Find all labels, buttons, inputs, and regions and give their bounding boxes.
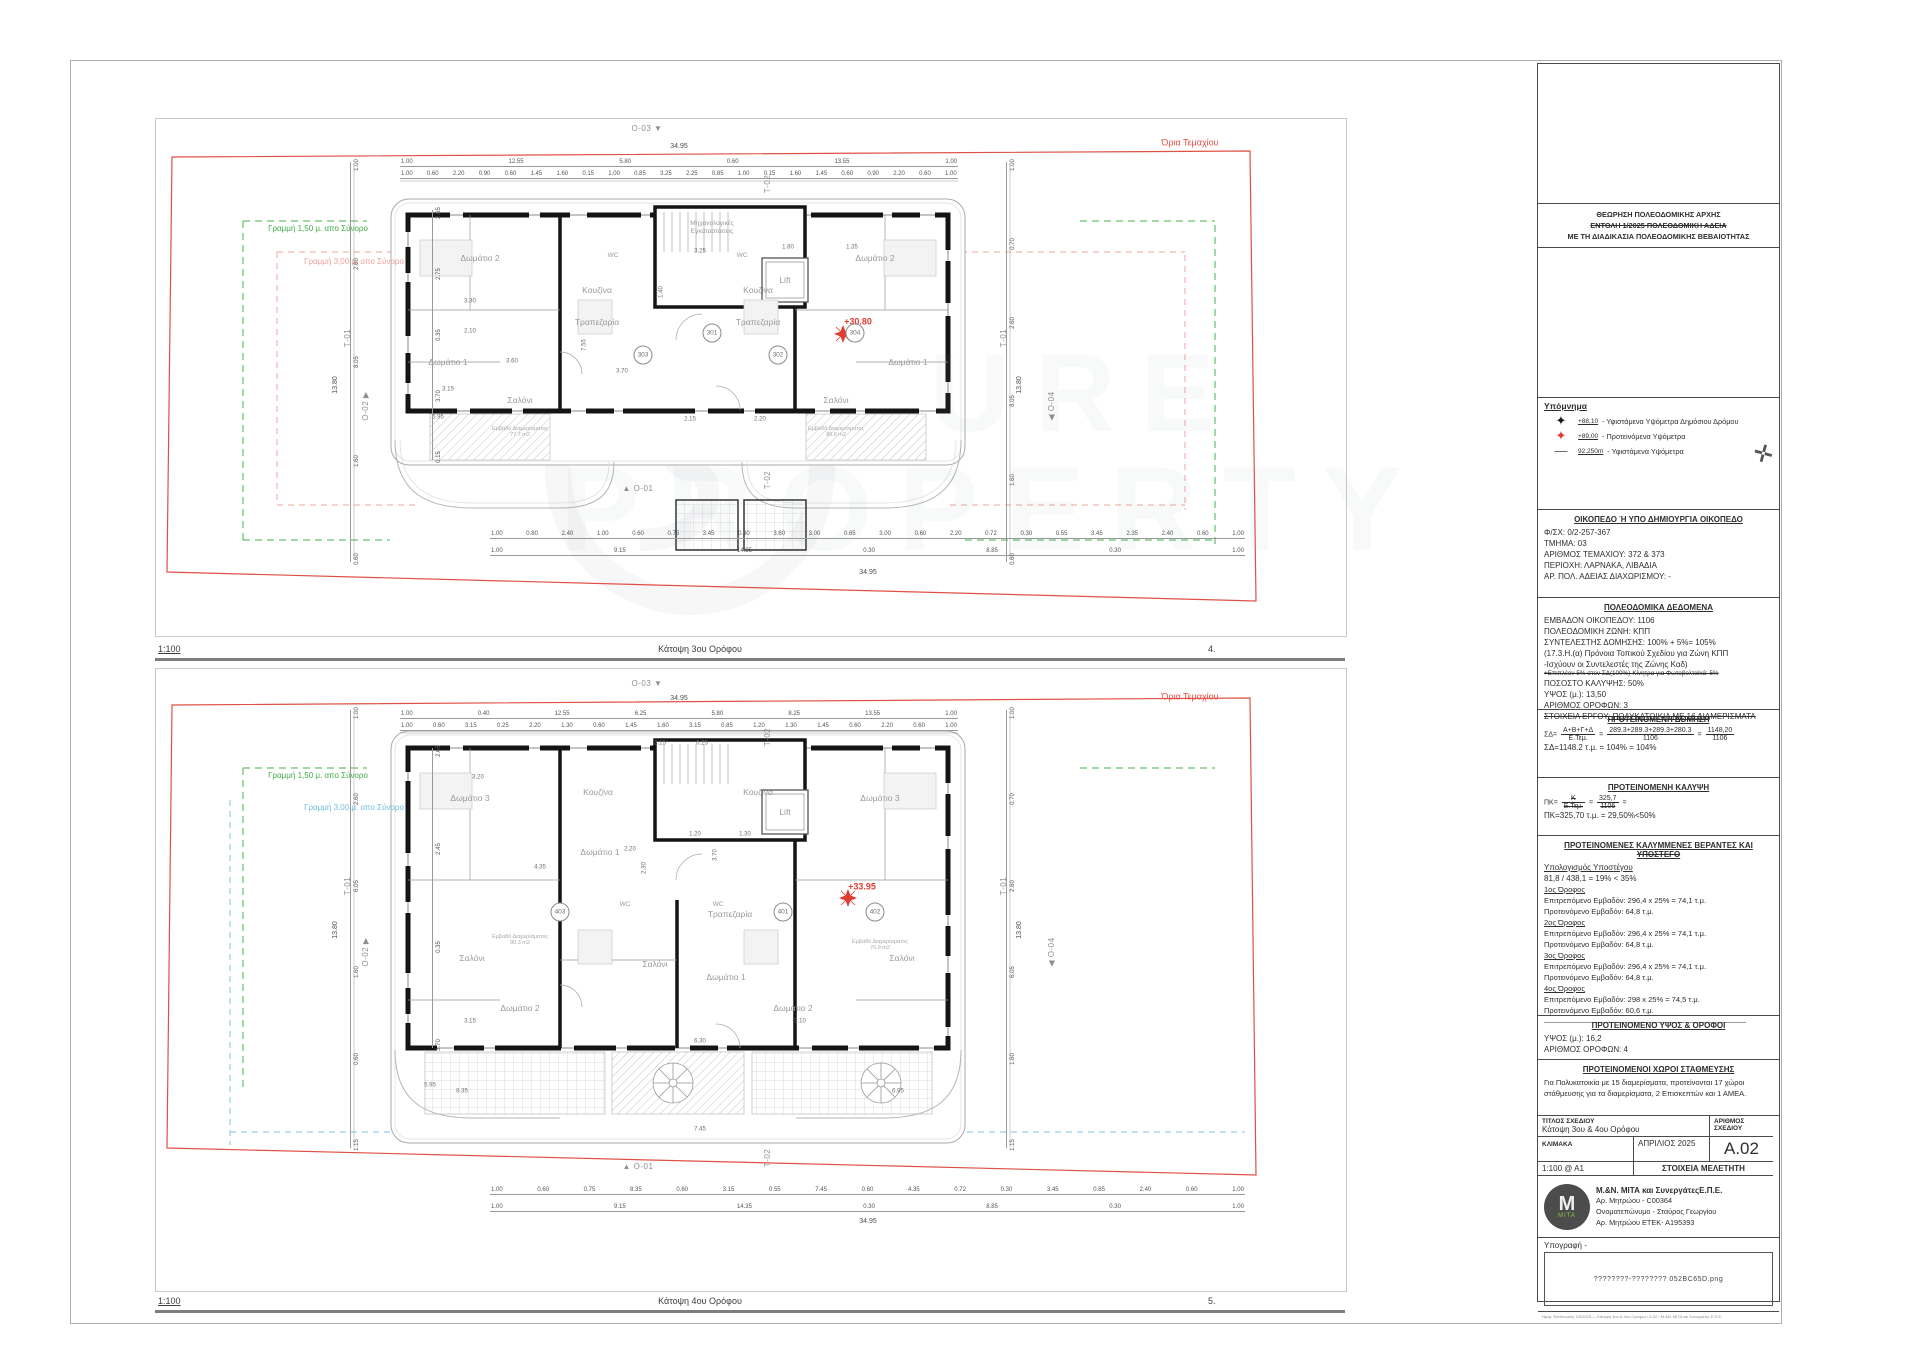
legend-items: ✦+88,10- Υφιστάμενα Υψόμετρα Δημόσιου Δρ… — [1544, 416, 1773, 456]
legend-description: - Προτεινόμενα Υψόμετρα — [1602, 432, 1685, 441]
verandas-calc-title: Υπολογισμός Υποστέγου — [1544, 862, 1773, 873]
drawing-number-label: ΑΡΙΘΜΟΣ ΣΧΕΔΙΟΥ — [1714, 1118, 1769, 1132]
zoning-header: ΠΟΛΕΟΔΟΜΙΚΑ ΔΕΔΟΜΕΝΑ — [1544, 603, 1773, 612]
verandas-calc: 81,8 / 438,1 = 19% < 35% — [1544, 873, 1773, 884]
plan2-caption-scale: 1:100 — [158, 1296, 181, 1306]
verandas-floors: 1ος ΌροφοςΕπιτρεπόμενο Εμβαδόν: 296,4 x … — [1544, 884, 1773, 1016]
legend-description: - Υφιστάμενα Υψόμετρα — [1607, 447, 1683, 456]
floor-allowed-area: Επιτρεπόμενο Εμβαδόν: 298 x 25% = 74,5 τ… — [1544, 994, 1773, 1005]
date-cell: ΑΠΡΙΛΙΟΣ 2025 — [1634, 1137, 1710, 1162]
stamp-area-2 — [1538, 248, 1779, 398]
scale-label-cell: ΚΛΙΜΑΚΑ — [1538, 1137, 1634, 1162]
drawing-title-cell: ΤΙΤΛΟΣ ΣΧΕΔΙΟΥ Κάτοψη 3ου & 4ου Ορόφου — [1538, 1116, 1710, 1137]
approval-line: ΘΕΩΡΗΣΗ ΠΟΛΕΟΔΟΜΙΚΗΣ ΑΡΧΗΣ — [1544, 209, 1773, 220]
legend-elevation-value: 92.250m — [1578, 448, 1603, 455]
sd-formula: ΣΔ= Α+Β+Γ+ΔΕ.Τεμ. = 289.3+289.3+289.3+28… — [1544, 727, 1773, 742]
approval-line: ΕΝΤΟΛΗ 1/2025 ΠΟΛΕΟΔΟΜΙΚΗ ΑΔΕΙΑ — [1544, 220, 1773, 231]
plan1-caption-number: 4. — [1208, 644, 1216, 654]
designer-lines: Αρ. Μητρώου - C00364Ονοματεπώνυμο - Σταύ… — [1596, 1195, 1722, 1228]
pk-formula: ΠΚ= ΚΕ.Τεμ. = 325,71106 = — [1544, 795, 1773, 810]
drawing-title-label: ΤΙΤΛΟΣ ΣΧΕΔΙΟΥ — [1542, 1118, 1705, 1125]
legend-title: Υπόμνημα — [1544, 401, 1773, 411]
verandas-header-2: ΥΠΟΣΤΕΓΟ — [1544, 850, 1773, 859]
floor-name: 4ος Όροφος — [1544, 983, 1773, 994]
approval-text-block: ΘΕΩΡΗΣΗ ΠΟΛΕΟΔΟΜΙΚΗΣ ΑΡΧΗΣΕΝΤΟΛΗ 1/2025 … — [1538, 204, 1779, 248]
legend-symbol-icon: ✦ — [1544, 416, 1578, 426]
coverage-section: ΠΡΟΤΕΙΝΟΜΕΝΗ ΚΑΛΥΨΗ ΠΚ= ΚΕ.Τεμ. = 325,71… — [1538, 778, 1779, 836]
floor-proposed-area: Προτεινόμενο Εμβαδόν: 64,8 τ.μ. — [1544, 906, 1773, 917]
zoning-lines: ΕΜΒΑΔΟΝ ΟΙΚΟΠΕΔΟΥ: 1106ΠΟΛΕΟΔΟΜΙΚΗ ΖΩΝΗ:… — [1544, 615, 1773, 722]
zoning-data-line: ΕΜΒΑΔΟΝ ΟΙΚΟΠΕΔΟΥ: 1106 — [1544, 615, 1773, 626]
verandas-header-1: ΠΡΟΤΕΙΝΟΜΕΝΕΣ ΚΑΛΥΜΜΕΝΕΣ ΒΕΡΑΝΤΕΣ ΚΑΙ — [1544, 841, 1773, 850]
legend-item: ✦+89,00- Προτεινόμενα Υψόμετρα — [1544, 431, 1773, 441]
plot-section: ΟΙΚΟΠΕΔΟ Ή ΥΠΟ ΔΗΜΙΟΥΡΓΙΑ ΟΙΚΟΠΕΔΟ Φ/ΣΧ:… — [1538, 510, 1779, 598]
zoning-data-line: ΥΨΟΣ (μ.): 13,50 — [1544, 689, 1773, 700]
designer-section: M MITA Μ.&Ν. ΜΙΤΑ και ΣυνεργάτεςΕ.Π.Ε. Α… — [1538, 1176, 1779, 1238]
floor-allowed-area: Επιτρεπόμενο Εμβαδόν: 296,4 x 25% = 74,1… — [1544, 928, 1773, 939]
zoning-data-line: ΠΟΛΕΟΔΟΜΙΚΗ ΖΩΝΗ: ΚΠΠ — [1544, 626, 1773, 637]
verandas-section: ΠΡΟΤΕΙΝΟΜΕΝΕΣ ΚΑΛΥΜΜΕΝΕΣ ΒΕΡΑΝΤΕΣ ΚΑΙ ΥΠ… — [1538, 836, 1779, 1016]
plot-header: ΟΙΚΟΠΕΔΟ Ή ΥΠΟ ΔΗΜΙΟΥΡΓΙΑ ΟΙΚΟΠΕΔΟ — [1544, 515, 1773, 524]
height-data-line: ΥΨΟΣ (μ.): 16,2 — [1544, 1033, 1773, 1044]
plan1-caption-scale: 1:100 — [158, 644, 181, 654]
drawing-title-value: Κάτοψη 3ου & 4ου Ορόφου — [1542, 1125, 1705, 1134]
drawing-number-cell: ΑΡΙΘΜΟΣ ΣΧΕΔΙΟΥ — [1710, 1116, 1773, 1137]
legend-item: ✦+88,10- Υφιστάμενα Υψόμετρα Δημόσιου Δρ… — [1544, 416, 1773, 426]
signature-placeholder-box: ????????-???????? 052BC65D.png — [1544, 1252, 1773, 1306]
height-data-line: ΑΡΙΘΜΟΣ ΟΡΟΦΩΝ: 4 — [1544, 1044, 1773, 1055]
height-section: ΠΡΟΤΕΙΝΟΜΕΝΟ ΥΨΟΣ & ΟΡΟΦΟΙ ΥΨΟΣ (μ.): 16… — [1538, 1016, 1779, 1060]
zoning-data-line: ΣΥΝΤΕΛΕΣΤΗΣ ΔΟΜΗΣΗΣ: 100% + 5%= 105% — [1544, 637, 1773, 648]
designer-data-line: Αρ. Μητρώου ΕΤΕΚ- Α195393 — [1596, 1217, 1722, 1228]
mita-logo-icon: M MITA — [1544, 1184, 1590, 1230]
parking-text: Για Πολυκατοικία με 15 διαμερίσματα, προ… — [1544, 1077, 1773, 1099]
signature-section: Υπογραφή - ????????-???????? 052BC65D.pn… — [1538, 1238, 1779, 1312]
stamp-area-1 — [1538, 64, 1779, 204]
legend-elevation-value: +88,10 — [1578, 418, 1598, 425]
plan2-caption-number: 5. — [1208, 1296, 1216, 1306]
plot-data-line: Φ/ΣΧ: 0/2-257-367 — [1544, 527, 1773, 538]
floor-name: 1ος Όροφος — [1544, 884, 1773, 895]
plot-data-line: ΑΡ. ΠΟΛ. ΑΔΕΙΑΣ ΔΙΑΧΩΡΙΣΜΟΥ: - — [1544, 571, 1773, 582]
proposed-build-header: ΠΡΟΤΕΙΝΟΜΕΝΗ ΔΟΜΗΣΗ — [1544, 715, 1773, 724]
proposed-build-section: ΠΡΟΤΕΙΝΟΜΕΝΗ ΔΟΜΗΣΗ ΣΔ= Α+Β+Γ+ΔΕ.Τεμ. = … — [1538, 710, 1779, 778]
zoning-data-line: +Επιπλέον 5% στον ΣΔ(100%)-Κίνητρα για Φ… — [1544, 670, 1773, 678]
legend-item: —92.250m- Υφιστάμενα Υψόμετρα — [1544, 446, 1773, 456]
designer-data-line: Αρ. Μητρώου - C00364 — [1596, 1195, 1722, 1206]
plot-data-line: ΠΕΡΙΟΧΗ: ΛΑΡΝΑΚΑ, ΛΙΒΑΔΙΑ — [1544, 560, 1773, 571]
level-marker-star-plan1 — [834, 325, 852, 343]
level-marker-star-plan2 — [839, 889, 857, 907]
fineprint-text: Ημερ. Εκτύπωσης 1/9/2025 — Κάτοψη 3ου & … — [1542, 1314, 1775, 1319]
zoning-data-line: (17.3.Η.(α) Πρόνοια Τοπικού Σχεδίου για … — [1544, 648, 1773, 659]
floor-proposed-area: Προτεινόμενο Εμβαδόν: 64,8 τ.μ. — [1544, 939, 1773, 950]
plot-lines: Φ/ΣΧ: 0/2-257-367ΤΜΗΜΑ: 03ΑΡΙΘΜΟΣ ΤΕΜΑΧΙ… — [1544, 527, 1773, 582]
height-lines: ΥΨΟΣ (μ.): 16,2ΑΡΙΘΜΟΣ ΟΡΟΦΩΝ: 4 — [1544, 1033, 1773, 1055]
legend-section: Υπόμνημα ✦+88,10- Υφιστάμενα Υψόμετρα Δη… — [1538, 398, 1779, 510]
parking-section: ΠΡΟΤΕΙΝΟΜΕΝΟΙ ΧΩΡΟΙ ΣΤΑΘΜΕΥΣΗΣ Για Πολυκ… — [1538, 1060, 1779, 1116]
floor-allowed-area: Επιτρεπόμενο Εμβαδόν: 296,4 x 25% = 74,1… — [1544, 961, 1773, 972]
floor-allowed-area: Επιτρεπόμενο Εμβαδόν: 296,4 x 25% = 74,1… — [1544, 895, 1773, 906]
zoning-section: ΠΟΛΕΟΔΟΜΙΚΑ ΔΕΔΟΜΕΝΑ ΕΜΒΑΔΟΝ ΟΙΚΟΠΕΔΟΥ: … — [1538, 598, 1779, 710]
sd-result: ΣΔ=1148.2 τ.μ. = 104% = 104% — [1544, 742, 1773, 753]
plan1-caption-rule — [155, 658, 1345, 661]
designer-name: Μ.&Ν. ΜΙΤΑ και ΣυνεργάτεςΕ.Π.Ε. — [1596, 1186, 1722, 1195]
floor-name: 2ος Όροφος — [1544, 917, 1773, 928]
coverage-header: ΠΡΟΤΕΙΝΟΜΕΝΗ ΚΑΛΥΨΗ — [1544, 783, 1773, 792]
scale-value-cell: 1:100 @ A1 — [1538, 1162, 1634, 1176]
legend-symbol-icon: ✦ — [1544, 431, 1578, 441]
drawing-number-value: A.02 — [1710, 1137, 1773, 1162]
legend-symbol-icon: — — [1544, 446, 1578, 456]
drawing-info-table: ΤΙΤΛΟΣ ΣΧΕΔΙΟΥ Κάτοψη 3ου & 4ου Ορόφου Α… — [1538, 1116, 1779, 1176]
designer-label-cell: ΣΤΟΙΧΕΙΑ ΜΕΛΕΤΗΤΗ — [1634, 1162, 1773, 1176]
fineprint-section: Ημερ. Εκτύπωσης 1/9/2025 — Κάτοψη 3ου & … — [1538, 1312, 1779, 1325]
height-header: ΠΡΟΤΕΙΝΟΜΕΝΟ ΥΨΟΣ & ΟΡΟΦΟΙ — [1544, 1021, 1773, 1030]
plan2-geometry — [167, 698, 1256, 1175]
plan2-caption-title: Κάτοψη 4ου Ορόφου — [658, 1296, 742, 1306]
plan2-caption-rule — [155, 1310, 1345, 1313]
plot-data-line: ΑΡΙΘΜΟΣ ΤΕΜΑΧΙΟΥ: 372 & 373 — [1544, 549, 1773, 560]
floor-proposed-area: Προτεινόμενο Εμβαδόν: 64,8 τ.μ. — [1544, 972, 1773, 983]
parking-header: ΠΡΟΤΕΙΝΟΜΕΝΟΙ ΧΩΡΟΙ ΣΤΑΘΜΕΥΣΗΣ — [1544, 1065, 1773, 1074]
legend-description: - Υφιστάμενα Υψόμετρα Δημόσιου Δρόμου — [1602, 417, 1738, 426]
designer-data-line: Ονοματεπώνυμο - Σταύρος Γεωργίου — [1596, 1206, 1722, 1217]
plan1-caption-title: Κάτοψη 3ου Ορόφου — [658, 644, 742, 654]
plot-data-line: ΤΜΗΜΑ: 03 — [1544, 538, 1773, 549]
floor-proposed-area: Προτεινόμενο Εμβαδόν: 60,6 τ.μ. — [1544, 1005, 1773, 1016]
title-block: ΘΕΩΡΗΣΗ ΠΟΛΕΟΔΟΜΙΚΗΣ ΑΡΧΗΣΕΝΤΟΛΗ 1/2025 … — [1537, 63, 1780, 1302]
signature-label: Υπογραφή - — [1544, 1241, 1587, 1250]
zoning-data-line: -Ισχύουν οι Συντελεστές της Ζώνης Καδ) — [1544, 659, 1773, 670]
approval-line: ΜΕ ΤΗ ΔΙΑΔΙΚΑΣΙΑ ΠΟΛΕΟΔΟΜΙΚΗΣ ΒΕΒΑΙΟΤΗΤΑ… — [1544, 231, 1773, 242]
pk-result: ΠΚ=325,70 τ.μ. = 29,50%<50% — [1544, 810, 1773, 821]
plan1-geometry — [167, 151, 1256, 601]
legend-elevation-value: +89,00 — [1578, 433, 1598, 440]
floor-name: 3ος Όροφος — [1544, 950, 1773, 961]
zoning-data-line: ΠΟΣΟΣΤΟ ΚΑΛΥΨΗΣ: 50% — [1544, 678, 1773, 689]
